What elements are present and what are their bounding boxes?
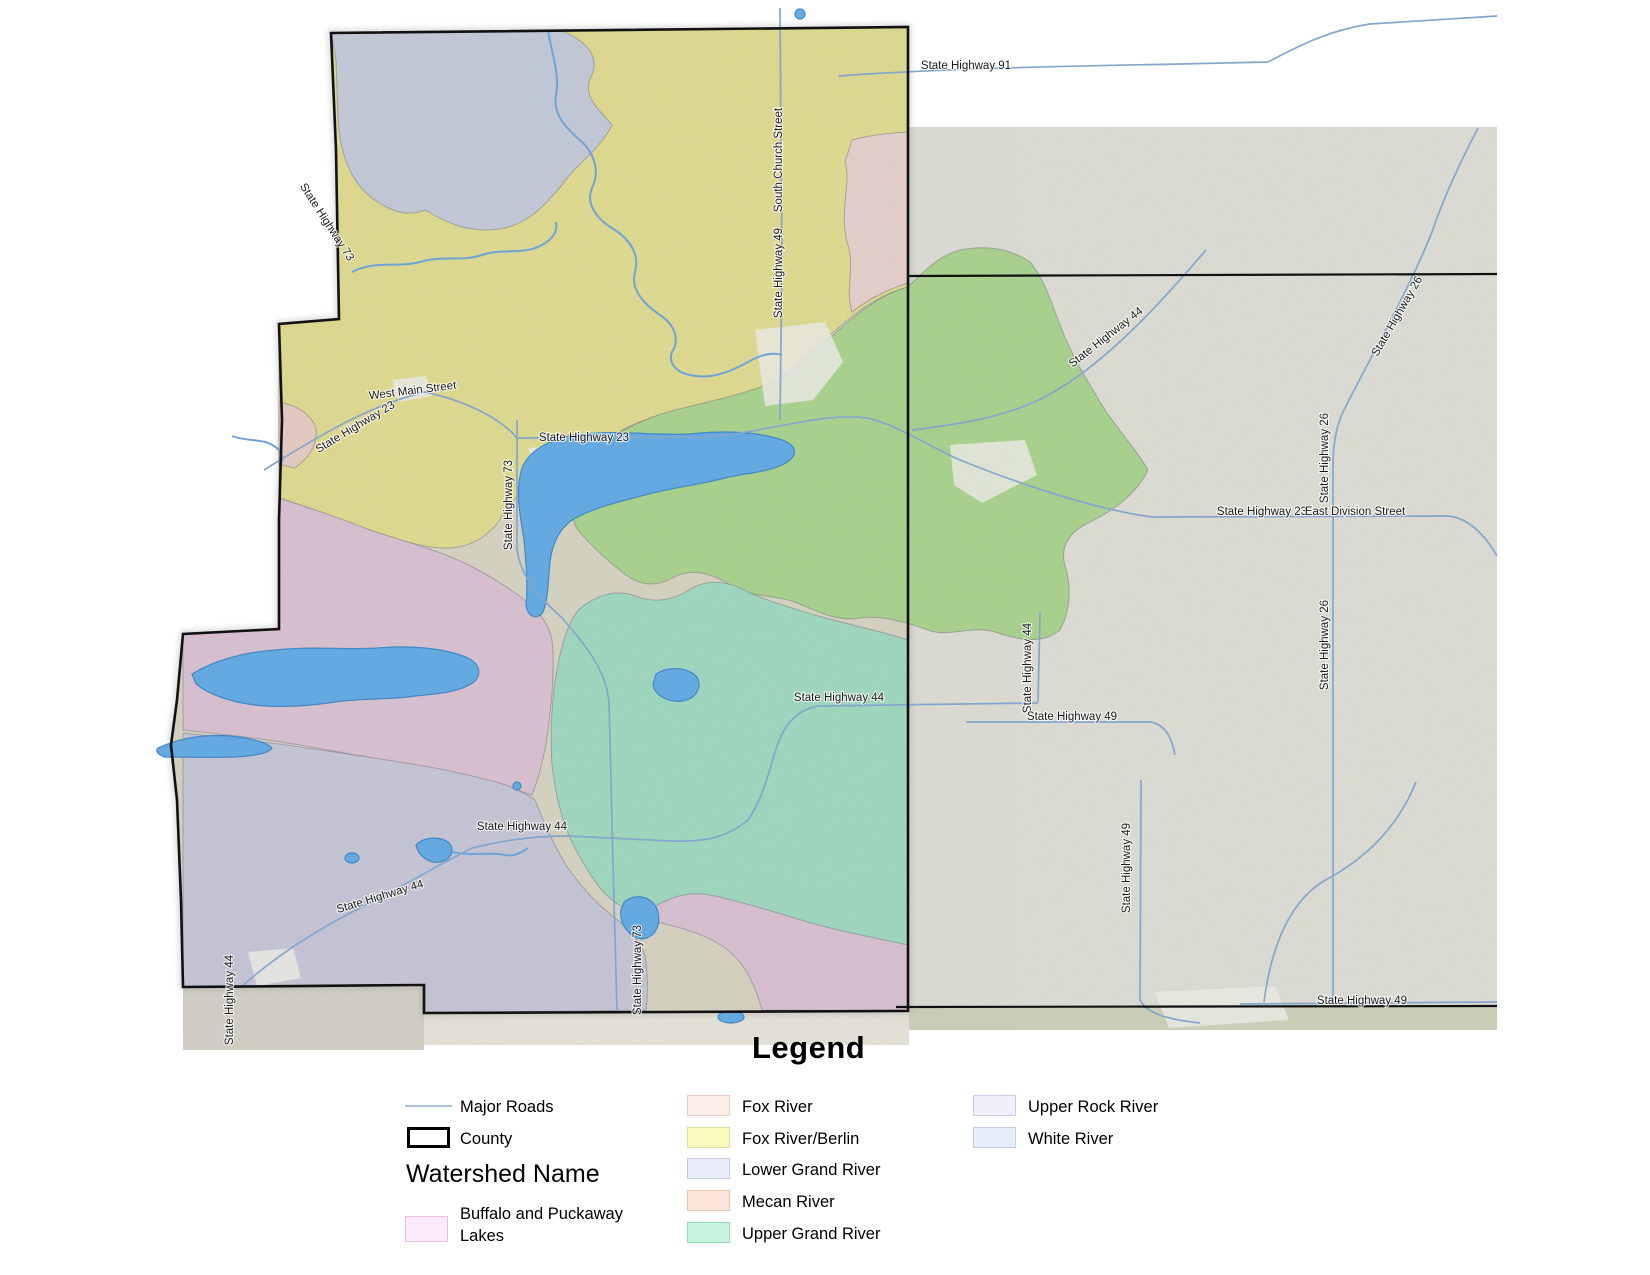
swatch-buffalo-puckaway [405, 1216, 448, 1242]
label-fox-river: Fox River [742, 1096, 813, 1118]
small-lake-5 [795, 9, 805, 19]
watershed-name-heading: Watershed Name [406, 1160, 600, 1189]
label-fox-river-berlin: Fox River/Berlin [742, 1128, 859, 1150]
map-label-hw26-upper: State Highway 26 [1319, 413, 1331, 503]
map-label-hw44-vertical: State Highway 44 [1022, 622, 1034, 713]
map-label-hw26-lower: State Highway 26 [1319, 600, 1331, 690]
swatch-upper-rock-river [973, 1095, 1016, 1116]
map-label-hw44-south: State Highway 44 [477, 821, 568, 833]
map-label-hw73-central: State Highway 73 [503, 460, 515, 550]
major-roads-swatch [405, 1105, 452, 1107]
label-upper-rock-river: Upper Rock River [1028, 1096, 1158, 1118]
map-label-hw91: State Highway 91 [921, 60, 1011, 72]
small-lake-3 [513, 782, 521, 790]
watershed-map-page: State Highway 91South Church StreetState… [0, 0, 1650, 1275]
label-white-river: White River [1028, 1128, 1113, 1150]
map-label-hw73-south: State Highway 73 [632, 925, 644, 1015]
swatch-lower-grand-river [687, 1158, 730, 1179]
map-label-hw44-central: State Highway 44 [794, 692, 885, 704]
swatch-fox-river-berlin [687, 1127, 730, 1148]
map-label-south-church-street: South Church Street [773, 107, 785, 212]
small-lake-2 [345, 853, 359, 863]
major-roads-label: Major Roads [460, 1096, 554, 1118]
swatch-mecan-river [687, 1190, 730, 1211]
map-label-hw49-north: State Highway 49 [773, 228, 785, 318]
label-buffalo-puckaway: Buffalo and Puckaway Lakes [460, 1203, 650, 1247]
map-label-hw23-central: State Highway 23 [539, 432, 629, 444]
mecan-river-stream [232, 436, 283, 462]
map-label-hw49-central: State Highway 49 [1027, 711, 1117, 723]
swatch-white-river [973, 1127, 1016, 1148]
county-swatch [407, 1127, 450, 1148]
label-upper-grand-river: Upper Grand River [742, 1223, 880, 1245]
label-mecan-river: Mecan River [742, 1191, 835, 1213]
map-label-east-division-street: East Division Street [1305, 506, 1406, 518]
watershed-map: State Highway 91South Church StreetState… [0, 0, 1650, 1275]
swatch-fox-river [687, 1095, 730, 1116]
swatch-upper-grand-river [687, 1222, 730, 1243]
map-label-hw49-southeast: State Highway 49 [1317, 995, 1407, 1007]
map-label-hw23-east: State Highway 23 [1217, 506, 1307, 518]
map-label-hw49-south-vertical: State Highway 49 [1121, 823, 1133, 913]
label-lower-grand-river: Lower Grand River [742, 1159, 880, 1181]
legend-title: Legend [752, 1030, 892, 1066]
county-label: County [460, 1128, 512, 1150]
map-label-hw44-far-southwest: State Highway 44 [224, 954, 236, 1045]
